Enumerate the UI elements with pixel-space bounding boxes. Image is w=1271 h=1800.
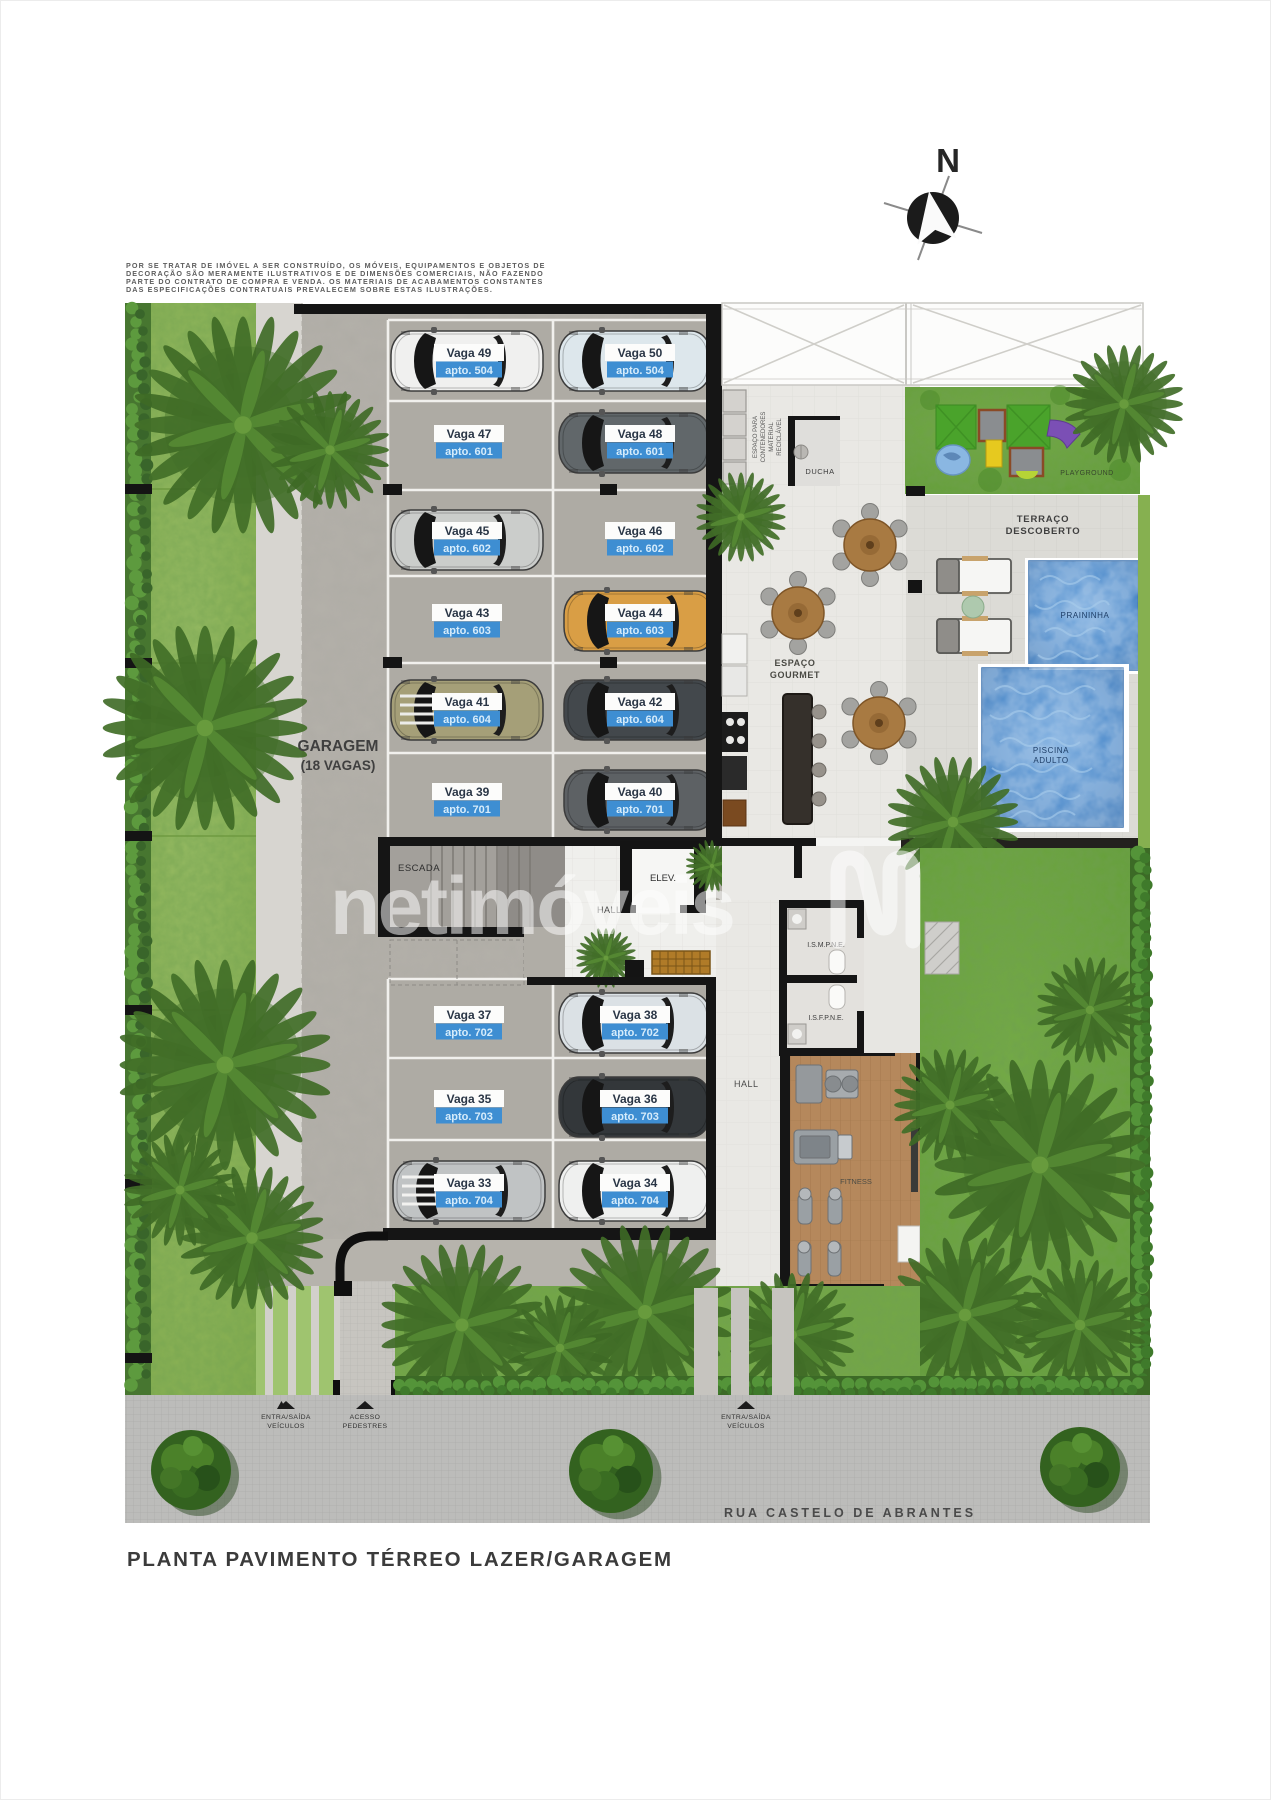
svg-text:apto. 602: apto. 602	[616, 543, 664, 555]
svg-text:GARAGEM: GARAGEM	[298, 738, 379, 755]
svg-text:apto. 601: apto. 601	[445, 446, 493, 458]
svg-text:Vaga 44: Vaga 44	[618, 606, 663, 620]
svg-text:FITNESS: FITNESS	[840, 1177, 872, 1186]
svg-text:apto. 702: apto. 702	[445, 1027, 493, 1039]
svg-text:netimóveis: netimóveis	[330, 861, 733, 952]
svg-text:Vaga 43: Vaga 43	[445, 606, 490, 620]
svg-text:apto. 704: apto. 704	[445, 1195, 494, 1207]
svg-text:Vaga 46: Vaga 46	[618, 524, 663, 538]
svg-text:apto. 701: apto. 701	[443, 804, 491, 816]
svg-text:Vaga 36: Vaga 36	[613, 1092, 658, 1106]
svg-text:Vaga 42: Vaga 42	[618, 695, 663, 709]
svg-text:Vaga 39: Vaga 39	[445, 785, 490, 799]
svg-text:MATERIAL: MATERIAL	[769, 422, 775, 452]
svg-text:apto. 602: apto. 602	[443, 543, 491, 555]
svg-text:(18 VAGAS): (18 VAGAS)	[301, 758, 376, 773]
svg-text:PISCINA: PISCINA	[1033, 746, 1069, 755]
svg-text:Vaga 41: Vaga 41	[445, 695, 490, 709]
svg-text:PEDESTRES: PEDESTRES	[343, 1423, 388, 1430]
svg-text:apto. 601: apto. 601	[616, 446, 664, 458]
svg-text:VEÍCULOS: VEÍCULOS	[267, 1421, 305, 1430]
svg-text:Vaga 48: Vaga 48	[618, 427, 663, 441]
svg-text:GOURMET: GOURMET	[770, 670, 820, 680]
svg-text:Vaga 50: Vaga 50	[618, 346, 663, 360]
svg-text:Vaga 34: Vaga 34	[613, 1176, 658, 1190]
svg-text:HALL: HALL	[734, 1079, 759, 1089]
svg-text:apto. 703: apto. 703	[445, 1111, 493, 1123]
svg-text:ENTRA/SAÍDA: ENTRA/SAÍDA	[261, 1412, 311, 1421]
svg-text:apto. 704: apto. 704	[611, 1195, 660, 1207]
svg-text:Vaga 45: Vaga 45	[445, 524, 490, 538]
svg-text:Vaga 37: Vaga 37	[447, 1008, 492, 1022]
svg-text:DAS ESPECIFICAÇÕES CONTRATUA: DAS ESPECIFICAÇÕES CONTRATUAIS PREVALECE…	[126, 285, 493, 294]
svg-text:PLAYGROUND: PLAYGROUND	[1060, 470, 1114, 477]
svg-text:N: N	[936, 142, 960, 179]
svg-text:apto. 504: apto. 504	[445, 365, 494, 377]
svg-text:apto. 604: apto. 604	[443, 714, 492, 726]
svg-text:apto. 604: apto. 604	[616, 714, 665, 726]
svg-text:Vaga 38: Vaga 38	[613, 1008, 658, 1022]
svg-text:Vaga 35: Vaga 35	[447, 1092, 492, 1106]
svg-text:CONTENEDORES: CONTENEDORES	[761, 412, 767, 463]
svg-text:apto. 701: apto. 701	[616, 804, 664, 816]
svg-text:apto. 603: apto. 603	[443, 625, 491, 637]
svg-text:apto. 603: apto. 603	[616, 625, 664, 637]
svg-text:ADULTO: ADULTO	[1033, 756, 1068, 765]
svg-text:RECICLÁVEL: RECICLÁVEL	[776, 418, 783, 456]
svg-text:apto. 703: apto. 703	[611, 1111, 659, 1123]
svg-text:ENTRA/SAÍDA: ENTRA/SAÍDA	[721, 1412, 771, 1421]
svg-text:apto. 702: apto. 702	[611, 1027, 659, 1039]
svg-text:Vaga 49: Vaga 49	[447, 346, 492, 360]
svg-text:DESCOBERTO: DESCOBERTO	[1006, 526, 1081, 537]
svg-text:VEÍCULOS: VEÍCULOS	[727, 1421, 765, 1430]
svg-text:apto. 504: apto. 504	[616, 365, 665, 377]
svg-text:Vaga 33: Vaga 33	[447, 1176, 492, 1190]
svg-text:TERRAÇO: TERRAÇO	[1017, 514, 1070, 525]
svg-text:Vaga 47: Vaga 47	[447, 427, 492, 441]
svg-text:PLANTA PAVIMENTO TÉRREO LAZER/: PLANTA PAVIMENTO TÉRREO LAZER/GARAGEM	[127, 1548, 673, 1571]
svg-text:ESPAÇO: ESPAÇO	[775, 658, 816, 668]
svg-text:DUCHA: DUCHA	[805, 467, 834, 476]
svg-text:Vaga 40: Vaga 40	[618, 785, 663, 799]
svg-text:I.S.F.P.N.E.: I.S.F.P.N.E.	[808, 1015, 843, 1022]
svg-text:PRAININHA: PRAININHA	[1061, 611, 1110, 620]
svg-text:ACESSO: ACESSO	[350, 1414, 381, 1421]
svg-text:RUA CASTELO DE ABRANTES: RUA CASTELO DE ABRANTES	[724, 1506, 976, 1520]
svg-text:ESPAÇO PARA: ESPAÇO PARA	[753, 416, 759, 458]
